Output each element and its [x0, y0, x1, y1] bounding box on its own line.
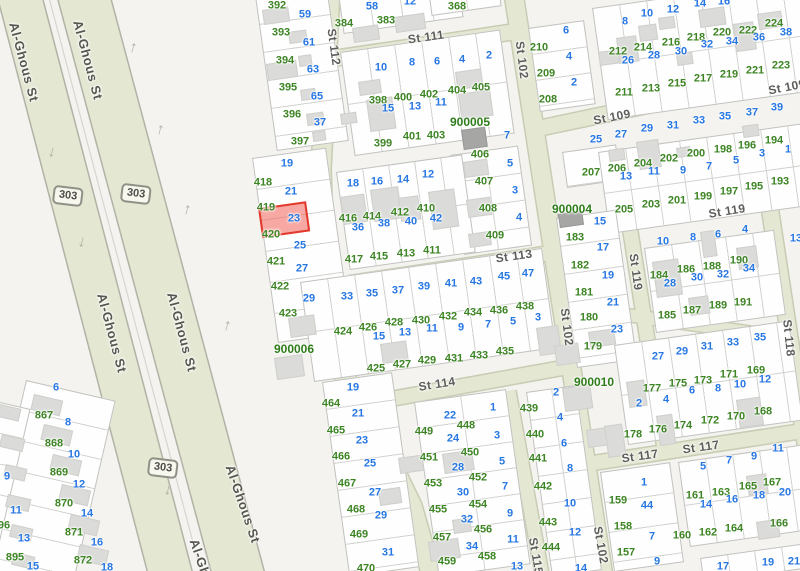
address-number-label: 17: [597, 243, 609, 254]
address-number-label: 14: [575, 564, 587, 571]
parcel-number-label: 172: [701, 416, 719, 427]
address-number-label: 25: [590, 135, 602, 146]
parcel-number-label: 177: [643, 384, 661, 395]
parcel-number-label: 427: [393, 360, 411, 371]
address-number-label: 6: [561, 439, 567, 450]
survey-number-label: 900005: [450, 116, 490, 128]
address-number-label: 13: [409, 102, 421, 113]
address-number-label: 30: [457, 488, 469, 499]
building: [742, 124, 760, 138]
parcel-number-label: 415: [370, 252, 388, 263]
address-number-label: 34: [466, 542, 478, 553]
address-number-label: 13: [18, 534, 30, 545]
parcel-number-label: 176: [649, 425, 667, 436]
parcel-number-label: 399: [374, 139, 392, 150]
address-number-label: 4: [566, 52, 572, 63]
address-number-label: 1: [785, 145, 791, 156]
address-number-label: 61: [303, 38, 315, 49]
address-number-label: 9: [751, 452, 757, 463]
address-number-label: 14: [694, 0, 706, 10]
survey-number-label: 900006: [274, 343, 314, 355]
address-number-label: 37: [746, 108, 758, 119]
parcel-number-label: 442: [534, 482, 552, 493]
parcel-number-label: 217: [694, 74, 712, 85]
parcel-number-label: 895: [6, 553, 24, 564]
parcel-number-label: 396: [283, 110, 301, 121]
parcel-number-label: 181: [575, 288, 593, 299]
parcel-number-label: 408: [479, 204, 497, 215]
parcel-number-label: 209: [537, 69, 555, 80]
address-number-label: 14: [700, 500, 712, 511]
address-number-label: 41: [445, 279, 457, 290]
parcel-number-label: 210: [530, 43, 548, 54]
address-number-label: 6: [715, 230, 721, 241]
parcel-number-label: 197: [720, 187, 738, 198]
address-number-label: 34: [743, 264, 755, 275]
address-number-label: 4: [663, 395, 669, 406]
parcel-number-label: 457: [433, 533, 451, 544]
address-number-label: 35: [719, 112, 731, 123]
building: [312, 130, 326, 142]
address-number-label: 19: [281, 159, 293, 170]
address-number-label: 6: [434, 57, 440, 68]
parcel-number-label: 368: [448, 2, 466, 13]
parcel-number-label: 429: [418, 356, 436, 367]
parcel-number-label: 435: [496, 347, 514, 358]
parcel-number-label: 451: [420, 453, 438, 464]
address-number-label: 11: [426, 324, 438, 335]
address-number-label: 7: [502, 482, 508, 493]
address-number-label: 33: [341, 292, 353, 303]
parcel-number-label: 872: [74, 556, 92, 567]
parcel-number-label: 406: [471, 150, 489, 161]
building: [698, 6, 727, 28]
address-number-label: 31: [382, 548, 394, 559]
parcel-number-label: 215: [668, 79, 686, 90]
address-number-label: 63: [307, 65, 319, 76]
parcel-number-label: 213: [642, 84, 660, 95]
address-number-label: 11: [648, 167, 660, 178]
address-number-label: 9: [680, 166, 686, 177]
parcel-number-label: 434: [464, 308, 482, 319]
parcel-number-label: 182: [571, 261, 589, 272]
address-number-label: 7: [706, 162, 712, 173]
parcel-number-label: 450: [461, 448, 479, 459]
address-number-label: 31: [667, 121, 679, 132]
address-number-label: 11: [507, 535, 519, 546]
parcel-number-label: 194: [765, 136, 783, 147]
parcel-number-label: 170: [727, 412, 745, 423]
parcel-number-label: 411: [423, 246, 441, 257]
address-number-label: 7: [504, 131, 510, 142]
parcel-number-label: 439: [520, 404, 538, 415]
route-shield: 303: [52, 185, 84, 208]
address-number-label: 1: [641, 478, 647, 489]
address-number-label: 38: [378, 219, 390, 230]
parcel-number-label: 468: [347, 505, 365, 516]
address-number-label: 3: [535, 313, 541, 324]
parcel-number-label: 162: [699, 528, 717, 539]
parcel-number-label: 421: [267, 257, 285, 268]
address-number-label: 15: [382, 104, 394, 115]
address-number-label: 10: [734, 380, 746, 391]
parcel-number-label: 867: [35, 411, 53, 422]
address-number-label: 10: [375, 63, 387, 74]
parcel-number-label: 207: [582, 168, 600, 179]
parcel-number-label: 405: [472, 83, 490, 94]
parcel-number-label: 219: [720, 70, 738, 81]
parcel-number-label: 223: [772, 61, 790, 72]
parcel-number-label: 205: [615, 205, 633, 216]
address-number-label: 8: [65, 418, 71, 429]
parcel-number-label: 200: [687, 149, 705, 160]
address-number-label: 7: [649, 532, 655, 543]
address-number-label: 45: [498, 272, 510, 283]
address-number-label: 20: [779, 488, 791, 499]
address-number-label: 40: [405, 217, 417, 228]
address-number-label: 16: [91, 538, 103, 549]
parcel-number-label: 221: [746, 66, 764, 77]
address-number-label: 9: [4, 472, 10, 483]
parcel-number-label: 452: [469, 473, 487, 484]
address-number-label: 2: [636, 399, 642, 410]
address-number-label: 15: [373, 332, 385, 343]
parcel-number-label: 175: [669, 379, 687, 390]
parcel-number-label: 193: [771, 177, 789, 188]
address-number-label: 12: [759, 375, 771, 386]
address-number-label: 29: [303, 294, 315, 305]
address-number-label: 1: [490, 403, 496, 414]
address-number-label: 8: [567, 464, 573, 475]
parcel-number-label: 871: [65, 528, 83, 539]
address-number-label: 23: [288, 214, 300, 225]
address-number-label: 7: [485, 320, 491, 331]
building: [340, 112, 358, 125]
address-number-label: 8: [409, 58, 415, 69]
address-number-label: 4: [742, 225, 748, 236]
address-number-label: 27: [615, 130, 627, 141]
address-number-label: 18: [101, 563, 113, 571]
address-number-label: 32: [461, 515, 473, 526]
address-number-label: 5: [510, 317, 516, 328]
parcel-number-label: 417: [345, 255, 363, 266]
survey-number-label: 900010: [574, 376, 614, 388]
address-number-label: 29: [641, 124, 653, 135]
parcel-number-label: 199: [694, 192, 712, 203]
address-number-label: 21: [607, 298, 619, 309]
parcel-number-label: 441: [529, 454, 547, 465]
address-number-label: 30: [675, 47, 687, 58]
address-number-label: 13: [399, 328, 411, 339]
parcel-number-label: 869: [50, 468, 68, 479]
parcel-number-label: 96: [0, 521, 10, 532]
address-number-label: 16: [718, 0, 730, 8]
address-number-label: 39: [418, 282, 430, 293]
address-number-label: 11: [772, 444, 784, 455]
parcel-number-label: 454: [469, 500, 487, 511]
address-number-label: 23: [611, 325, 623, 336]
address-number-label: 5: [507, 159, 513, 170]
address-number-label: 12: [404, 0, 416, 8]
parcel-number-label: 195: [745, 182, 763, 193]
address-number-label: 12: [73, 480, 85, 491]
parcel-number-label: 443: [539, 518, 557, 529]
address-number-label: 58: [366, 2, 378, 13]
parcel-number-label: 464: [322, 399, 340, 410]
address-number-label: 14: [397, 175, 409, 186]
parcel-number-label: 185: [658, 311, 676, 322]
building: [378, 487, 402, 506]
parcel-number-label: 449: [415, 427, 433, 438]
parcel-number-label: 431: [445, 354, 463, 365]
parcel-number-label: 467: [338, 479, 356, 490]
parcel-number-label: 444: [542, 543, 560, 554]
parcel-number-label: 191: [734, 298, 752, 309]
address-number-label: 18: [753, 491, 765, 502]
address-number-label: 3: [512, 186, 518, 197]
address-number-label: 43: [470, 277, 482, 288]
parcel-number-label: 456: [474, 525, 492, 536]
address-number-label: 32: [701, 40, 713, 51]
parcel-number-label: 180: [580, 313, 598, 324]
parcel-number-label: 870: [55, 499, 73, 510]
address-number-label: 5: [733, 156, 739, 167]
address-number-label: 8: [690, 233, 696, 244]
parcel-number-label: 423: [279, 309, 297, 320]
parcel-number-label: 459: [438, 557, 456, 568]
parcel-number-label: 458: [478, 552, 496, 563]
address-number-label: 21: [352, 409, 364, 420]
parcel-number-label: 436: [490, 306, 508, 317]
address-number-label: 2: [486, 51, 492, 62]
survey-number-label: 900004: [552, 203, 592, 215]
parcel-number-label: 438: [516, 302, 534, 313]
address-number-label: 8: [715, 384, 721, 395]
address-number-label: 47: [522, 269, 534, 280]
parcel-number-label: 407: [475, 177, 493, 188]
parcel-number-label: 432: [439, 312, 457, 323]
parcel-number-label: 168: [754, 407, 772, 418]
address-number-label: 6: [53, 383, 59, 394]
parcel-number-label: 409: [486, 231, 504, 242]
address-number-label: 26: [622, 56, 634, 67]
address-number-label: 37: [392, 286, 404, 297]
address-number-label: 4: [459, 55, 465, 66]
address-number-label: 19: [602, 271, 614, 282]
address-number-label: 5: [499, 457, 505, 468]
parcel-number-label: 383: [377, 16, 395, 27]
address-number-label: 44: [641, 501, 653, 512]
parcel-number-label: 203: [642, 200, 660, 211]
address-number-label: 28: [664, 279, 676, 290]
address-number-label: 18: [347, 179, 359, 190]
address-number-label: 22: [444, 411, 456, 422]
parcel-number-label: 202: [660, 154, 678, 165]
address-number-label: 9: [507, 509, 513, 520]
parcel-number-label: 433: [470, 351, 488, 362]
parcel-number-label: 420: [262, 230, 280, 241]
route-shield: 303: [147, 457, 179, 480]
address-number-label: 16: [726, 495, 738, 506]
parcel-number-label: 189: [709, 301, 727, 312]
address-number-label: 10: [641, 9, 653, 20]
parcel-number-label: 470: [357, 564, 375, 571]
parcel-number-label: 201: [668, 196, 686, 207]
address-number-label: 37: [314, 118, 326, 129]
address-number-label: 33: [727, 338, 739, 349]
parcel-number-label: 208: [539, 95, 557, 106]
address-number-label: 6: [689, 386, 695, 397]
address-number-label: 28: [648, 51, 660, 62]
parcel-number-label: 422: [271, 282, 289, 293]
address-number-label: 29: [676, 347, 688, 358]
address-number-label: 27: [296, 264, 308, 275]
parcel-number-label: 418: [254, 178, 272, 189]
address-number-label: 8: [622, 17, 628, 28]
parcel-number-label: 183: [566, 233, 584, 244]
map-canvas[interactable]: ↑↑↑↑↑↑↑303303303392393394395396397384383…: [0, 0, 800, 571]
address-number-label: 10: [657, 237, 669, 248]
building: [658, 16, 676, 30]
address-number-label: 6: [563, 26, 569, 37]
parcel-number-label: 157: [617, 548, 635, 559]
address-number-label: 35: [366, 289, 378, 300]
address-number-label: 3: [759, 149, 765, 160]
parcel-number-label: 160: [673, 531, 691, 542]
address-number-label: 21: [788, 557, 800, 568]
address-number-label: 9: [458, 323, 464, 334]
address-number-label: 4: [557, 413, 563, 424]
address-number-label: 27: [652, 352, 664, 363]
address-number-label: 2: [571, 78, 577, 89]
parcel-number-label: 392: [268, 1, 286, 12]
address-number-label: 42: [430, 214, 442, 225]
parcel-number-label: 401: [403, 132, 421, 143]
address-number-label: 10: [68, 450, 80, 461]
address-number-label: 24: [447, 434, 459, 445]
building: [608, 148, 626, 162]
parcel-number-label: 178: [624, 430, 642, 441]
parcel-number-label: 196: [738, 141, 756, 152]
parcel-number-label: 455: [429, 505, 447, 516]
address-number-label: 25: [294, 241, 306, 252]
parcel-number-label: 179: [584, 342, 602, 353]
route-shield: 303: [120, 183, 152, 206]
address-number-label: 11: [435, 98, 447, 109]
address-number-label: 30: [691, 273, 703, 284]
building: [638, 23, 658, 42]
address-number-label: 12: [667, 5, 679, 16]
address-number-label: 4: [516, 213, 522, 224]
address-number-label: 33: [693, 116, 705, 127]
building: [274, 354, 305, 380]
address-number-label: 2: [553, 388, 559, 399]
address-number-label: 3: [494, 431, 500, 442]
parcel-number-label: 393: [272, 28, 290, 39]
parcel-number-label: 466: [332, 452, 350, 463]
address-number-label: 14: [81, 509, 93, 520]
address-number-label: 13: [790, 234, 800, 245]
address-number-label: 23: [356, 436, 368, 447]
parcel-number-label: 395: [279, 83, 297, 94]
parcel-number-label: 404: [448, 86, 466, 97]
parcel-number-label: 469: [350, 530, 368, 541]
parcel-number-label: 868: [45, 439, 63, 450]
address-number-label: 19: [347, 383, 359, 394]
parcel-number-label: 397: [291, 137, 309, 148]
address-number-label: 38: [780, 28, 792, 39]
parcel-number-label: 448: [457, 421, 475, 432]
address-number-label: 16: [371, 177, 383, 188]
address-number-label: 36: [753, 33, 765, 44]
parcel-number-label: 413: [397, 249, 415, 260]
parcel-number-label: 394: [276, 56, 294, 67]
parcel-number-label: 403: [427, 131, 445, 142]
address-number-label: 31: [701, 342, 713, 353]
parcel-number-label: 159: [609, 496, 627, 507]
address-number-label: 35: [754, 333, 766, 344]
address-number-label: 12: [422, 170, 434, 181]
address-number-label: 9: [654, 557, 660, 568]
parcel-number-label: 173: [694, 376, 712, 387]
building: [461, 127, 488, 150]
address-number-label: 39: [771, 103, 783, 114]
address-number-label: 32: [717, 270, 729, 281]
address-number-label: 65: [311, 92, 323, 103]
parcel-number-label: 453: [424, 479, 442, 490]
parcel-number-label: 166: [770, 519, 788, 530]
parcel-number-label: 211: [615, 88, 633, 99]
address-number-label: 25: [364, 459, 376, 470]
parcel-number-label: 198: [714, 145, 732, 156]
address-number-label: 17: [717, 562, 729, 571]
address-number-label: 10: [564, 499, 576, 510]
parcel-number-label: 187: [683, 306, 701, 317]
address-number-label: 59: [299, 10, 311, 21]
address-number-label: 15: [594, 217, 606, 228]
parcel-number-label: 465: [327, 426, 345, 437]
address-number-label: 13: [511, 562, 523, 571]
parcel-number-label: 440: [526, 430, 544, 441]
address-number-label: 21: [285, 187, 297, 198]
parcel-number-label: 174: [674, 421, 692, 432]
address-number-label: 36: [352, 223, 364, 234]
address-number-label: 28: [452, 463, 464, 474]
address-number-label: 29: [375, 511, 387, 522]
address-number-label: 15: [27, 562, 39, 571]
parcel-number-label: 164: [725, 524, 743, 535]
address-number-label: 11: [10, 506, 22, 517]
parcel-number-label: 158: [614, 522, 632, 533]
address-number-label: 7: [726, 456, 732, 467]
address-number-label: 27: [369, 488, 381, 499]
address-number-label: 13: [620, 172, 632, 183]
parcel-number-label: 424: [334, 327, 352, 338]
address-number-label: 5: [700, 462, 706, 473]
address-number-label: 19: [762, 558, 774, 569]
address-number-label: 34: [726, 37, 738, 48]
address-number-label: 12: [569, 528, 581, 539]
parcel-number-label: 425: [367, 364, 385, 375]
parcel-number-label: 419: [257, 203, 275, 214]
